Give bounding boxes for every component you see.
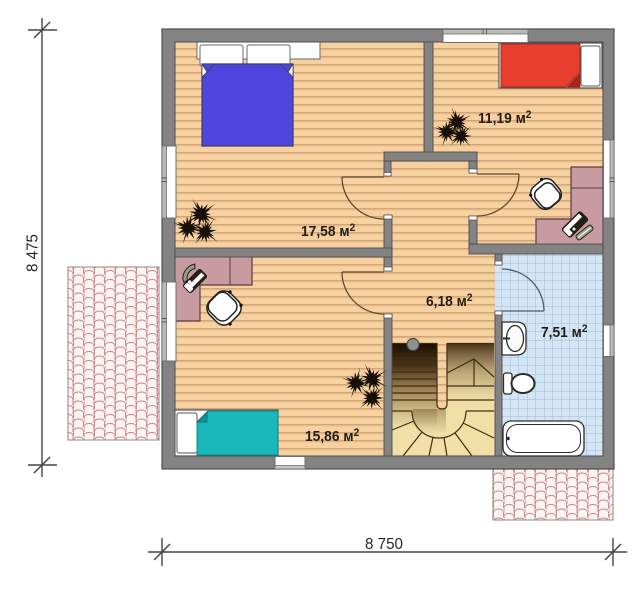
svg-text:11,19 м2: 11,19 м2 <box>478 109 532 128</box>
svg-text:8 750: 8 750 <box>365 536 403 553</box>
svg-text:17,58 м2: 17,58 м2 <box>301 222 355 241</box>
svg-text:8 475: 8 475 <box>24 234 41 272</box>
svg-text:6,18 м2: 6,18 м2 <box>426 292 473 311</box>
svg-text:7,51 м2: 7,51 м2 <box>541 323 588 342</box>
svg-text:15,86 м2: 15,86 м2 <box>305 427 359 446</box>
